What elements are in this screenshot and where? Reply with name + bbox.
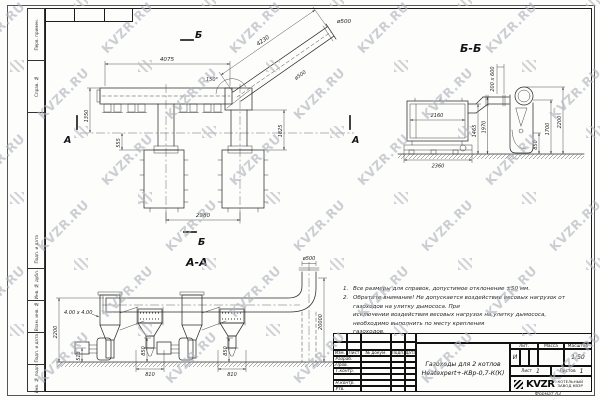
dim-2200-bb: 2200 [557, 116, 563, 129]
margin-cell [28, 113, 44, 231]
dim-incline-dia: ø500 [293, 70, 308, 83]
margin-cell: Подп. и дата [28, 333, 44, 365]
dim-duct-size: 4.00 x 4.00 [64, 310, 92, 316]
section-mark-a-left: А [63, 135, 71, 146]
dim-1970: 1970 [482, 121, 488, 134]
plan-header-duct [97, 88, 232, 104]
aa-main-duct [102, 262, 319, 362]
bb-boiler [404, 98, 472, 154]
aa-cyclone-unit-left [75, 292, 163, 360]
dim-4075: 4075 [160, 57, 175, 63]
kvzr-logo-text: KVZR [526, 379, 554, 390]
margin-cell: Справ. № [28, 61, 44, 113]
margin-cell: Подп. и дата [28, 231, 44, 269]
dim-850-left: 850 [141, 346, 147, 356]
dim-513: 513 [76, 351, 82, 361]
dim-850-right: 850 [223, 346, 229, 356]
row-utv: Утв. [333, 386, 361, 392]
sheets-cell: Листов1 [551, 366, 592, 376]
dim-1825: 1825 [278, 125, 284, 138]
aa-cyclone-unit-right [157, 292, 245, 360]
doc-title-line-2: Heatexpert+-КВр-0,7-К(К) [422, 370, 505, 377]
note-2: 2. Обратите внимание! Не допускается воз… [343, 294, 565, 336]
margin-cell: Инв. № подл. [28, 365, 44, 393]
company-name: КОТЕЛЬНЫЙ ЗАВОД КВЗР [557, 380, 583, 389]
plan-branch-stubs [103, 104, 223, 113]
dim-20000: 20000 [318, 314, 324, 330]
section-aa-view: А-А [53, 256, 336, 378]
title-block: Изм. Лист № докум. Подп. Дата Разраб. Пр… [333, 333, 592, 392]
note-1-text: Все размеры для справок, допустимое откл… [353, 285, 530, 293]
dim-810-left: 810 [145, 372, 155, 378]
designation-cell [416, 333, 592, 343]
plan-dimensions: 4075 4230 ø500 ø500 150° 1350 555 1825 [84, 7, 352, 223]
dim-1350: 1350 [84, 110, 90, 123]
bb-fan-unit [510, 87, 533, 153]
section-mark-a-right: А [351, 135, 359, 146]
dim-chimney-dia: ø500 [302, 256, 316, 262]
dim-2360: 2360 [432, 164, 445, 170]
scale-value: 1:50 [564, 349, 592, 366]
dim-1465: 1465 [472, 125, 478, 138]
dim-2200-aa: 2200 [53, 326, 59, 339]
dim-angle-150: 150° [206, 77, 219, 83]
plan-riser-left [154, 104, 178, 150]
note-1-number: 1. [343, 285, 349, 293]
notes: 1. Все размеры для справок, допустимое о… [343, 285, 565, 337]
note-2-line-2: исключении воздействия весовых нагрузок … [353, 311, 565, 328]
margin-cell: Перв. примен. [28, 9, 44, 61]
dim-2160: 2160 [431, 113, 444, 119]
dim-555: 555 [116, 138, 122, 148]
plan-boiler-right [218, 150, 268, 212]
section-bb-view: Б-Б [398, 42, 584, 170]
dim-1700: 1700 [545, 123, 551, 136]
top-left-stamp-box [45, 8, 133, 22]
section-mark-b-bottom: Б [198, 237, 205, 248]
note-2-number: 2. [343, 294, 349, 336]
bb-duct [468, 95, 509, 113]
dim-outlet-dia: ø500 [336, 19, 352, 25]
lit-value: И [510, 349, 520, 366]
note-2-line-1: Обратите внимание! Не допускается воздей… [353, 294, 565, 311]
company-cell: KVZR КОТЕЛЬНЫЙ ЗАВОД КВЗР [510, 376, 592, 392]
note-1: 1. Все размеры для справок, допустимое о… [343, 285, 565, 293]
dim-810-right: 810 [227, 372, 237, 378]
margin-cell: Взам. инв. № [28, 301, 44, 333]
section-mark-b-top: Б [195, 30, 202, 41]
format-label: Формат А3 [505, 392, 591, 397]
section-bb-title: Б-Б [460, 42, 481, 55]
dim-2980: 2980 [196, 213, 211, 219]
mass-value [538, 349, 564, 366]
left-margin-strip: Перв. примен. Справ. № Подп. и дата Инв.… [27, 8, 45, 392]
kvzr-logo-icon [514, 380, 523, 389]
plan-view: А А Б Б 4075 4230 ø500 ø500 150° [63, 7, 359, 248]
dim-200x600: 200 x 600 [490, 66, 496, 91]
plan-inclined-duct [225, 24, 336, 110]
dim-850-bb: 850 [533, 140, 539, 150]
sheet-cell: Лист1 [510, 366, 551, 376]
plan-boiler-left [140, 150, 188, 212]
margin-cell: Инв. № дубл. [28, 269, 44, 301]
section-aa-title: А-А [185, 256, 208, 269]
doc-title-cell: Газоходы для 2 котлов Heatexpert+-КВр-0,… [416, 343, 510, 392]
doc-title-line-1: Газоходы для 2 котлов [425, 361, 500, 368]
drawing-sheet: А А Б Б 4075 4230 ø500 ø500 150° [0, 0, 600, 400]
